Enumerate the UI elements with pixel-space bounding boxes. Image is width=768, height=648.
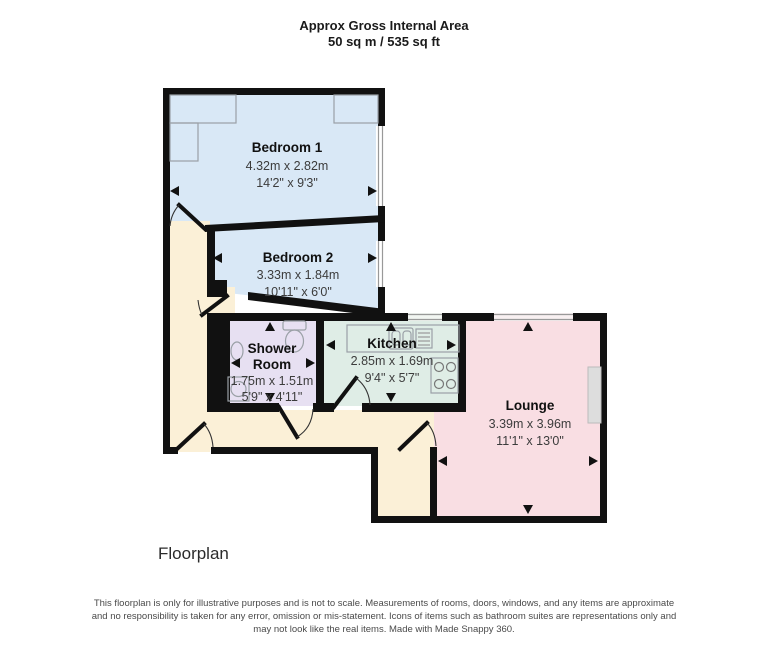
- bedroom2-window: [376, 241, 385, 287]
- wall-lower-bottom-a: [207, 403, 279, 412]
- hallway-strip: [166, 410, 434, 450]
- wall-shower-left: [207, 313, 230, 412]
- windows: [376, 126, 573, 321]
- kitchen-label: Kitchen: [367, 336, 417, 351]
- wall-top: [163, 88, 385, 95]
- kitchen-metric: 2.85m x 1.69m: [351, 354, 434, 368]
- bedroom2-label: Bedroom 2: [263, 250, 334, 265]
- bedroom2-metric: 3.33m x 1.84m: [257, 268, 340, 282]
- wall-vestibule-right: [430, 447, 437, 523]
- lounge-metric: 3.39m x 3.96m: [489, 417, 572, 431]
- wall-shower-kitchen: [316, 313, 324, 412]
- bedroom1-label: Bedroom 1: [252, 140, 323, 155]
- wall-vestibule-left: [371, 447, 378, 523]
- shower-room-label-1: Shower: [248, 341, 298, 356]
- wall-corner-block: [207, 280, 227, 297]
- wall-bedroom2-left: [207, 226, 215, 286]
- bedroom1-window: [376, 126, 385, 206]
- lounge-label: Lounge: [506, 398, 555, 413]
- lounge-window: [494, 313, 573, 321]
- wall-hall-bottom-right: [211, 447, 378, 454]
- shower-room-label-2: Room: [253, 357, 291, 372]
- kitchen-imperial: 9'4" x 5'7": [365, 371, 420, 385]
- bedroom1-metric: 4.32m x 2.82m: [246, 159, 329, 173]
- shower-room-metric: 1.75m x 1.51m: [231, 374, 314, 388]
- bedroom2-imperial: 10'11" x 6'0": [264, 285, 332, 299]
- wall-lower-bottom-b: [313, 403, 334, 412]
- disclaimer: This floorplan is only for illustrative …: [0, 597, 768, 636]
- disclaimer-line-2: and no responsibility is taken for any e…: [0, 610, 768, 623]
- wall-left: [163, 88, 170, 454]
- wall-lower-bottom-c: [362, 403, 466, 412]
- disclaimer-line-3: may not look like the real items. Made w…: [0, 623, 768, 636]
- kitchen-window: [408, 313, 442, 321]
- floorplan-page: Approx Gross Internal Area 50 sq m / 535…: [0, 0, 768, 648]
- lounge-radiator-icon: [588, 367, 601, 423]
- shower-room-imperial: 5'9" x 4'11": [242, 390, 303, 404]
- entrance-vestibule: [374, 445, 432, 520]
- bedroom1-imperial: 14'2" x 9'3": [256, 176, 318, 190]
- lounge-imperial: 11'1" x 13'0": [496, 434, 564, 448]
- floorplan-drawing: Bedroom 1 4.32m x 2.82m 14'2" x 9'3" Bed…: [0, 0, 768, 648]
- disclaimer-line-1: This floorplan is only for illustrative …: [0, 597, 768, 610]
- floorplan-caption: Floorplan: [158, 544, 229, 564]
- wall-bottom: [371, 516, 607, 523]
